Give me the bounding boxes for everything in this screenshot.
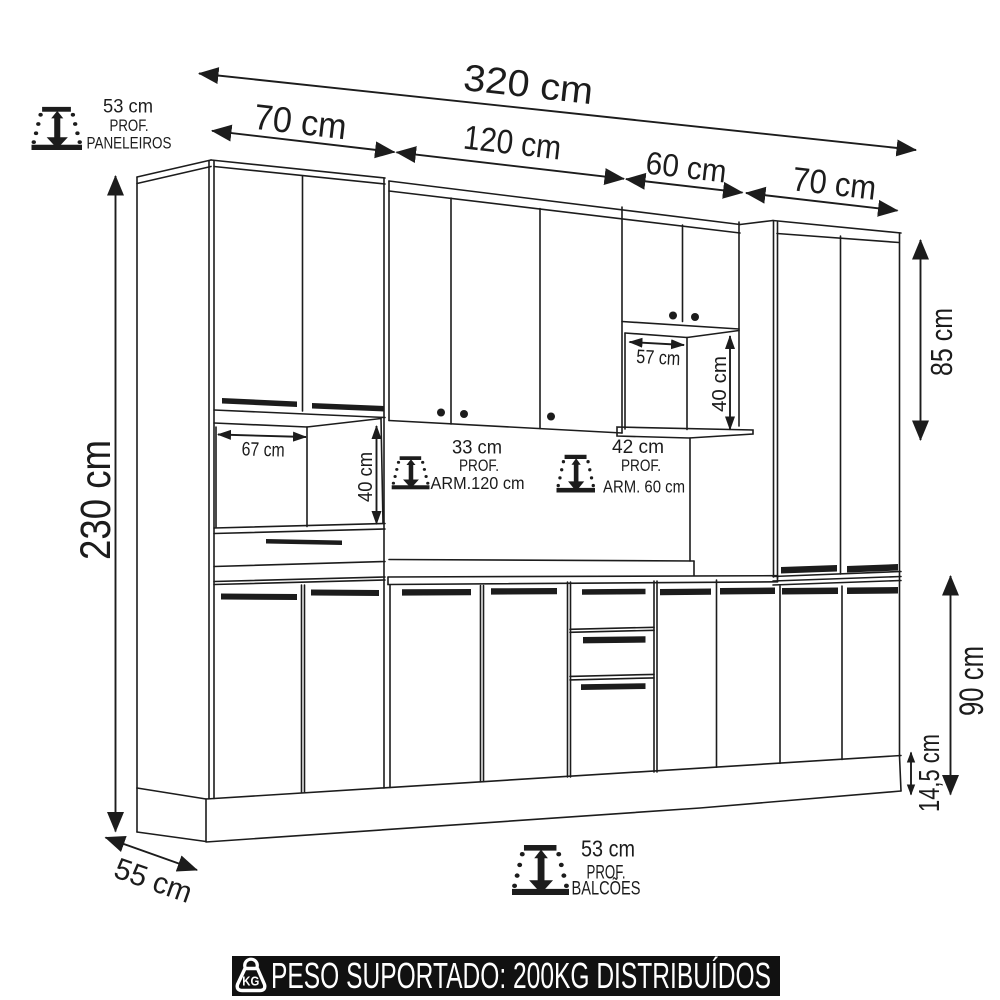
svg-text:85 cm: 85 cm <box>925 308 959 376</box>
svg-text:BALCÕES: BALCÕES <box>572 876 641 900</box>
svg-text:53 cm: 53 cm <box>581 836 635 862</box>
svg-text:PESO SUPORTADO: 200KG DISTRIBU: PESO SUPORTADO: 200KG DISTRIBUÍDOS <box>271 955 771 996</box>
svg-text:42 cm: 42 cm <box>612 436 664 458</box>
svg-text:14,5 cm: 14,5 cm <box>914 734 946 812</box>
svg-text:PROF.: PROF. <box>110 117 149 135</box>
svg-text:230 cm: 230 cm <box>72 440 120 560</box>
svg-text:KG: KG <box>242 974 259 989</box>
svg-text:ARM.120 cm: ARM.120 cm <box>431 473 525 493</box>
svg-text:53 cm: 53 cm <box>103 96 153 118</box>
svg-text:57 cm: 57 cm <box>636 346 681 370</box>
svg-text:90 cm: 90 cm <box>953 646 991 716</box>
svg-text:40 cm: 40 cm <box>708 356 731 412</box>
svg-text:PANELEIROS: PANELEIROS <box>87 135 172 153</box>
svg-text:67 cm: 67 cm <box>241 438 285 461</box>
svg-text:33 cm: 33 cm <box>452 437 502 459</box>
svg-text:PROF.: PROF. <box>621 457 661 475</box>
svg-text:ARM. 60 cm: ARM. 60 cm <box>603 477 685 497</box>
svg-text:40 cm: 40 cm <box>354 452 377 502</box>
